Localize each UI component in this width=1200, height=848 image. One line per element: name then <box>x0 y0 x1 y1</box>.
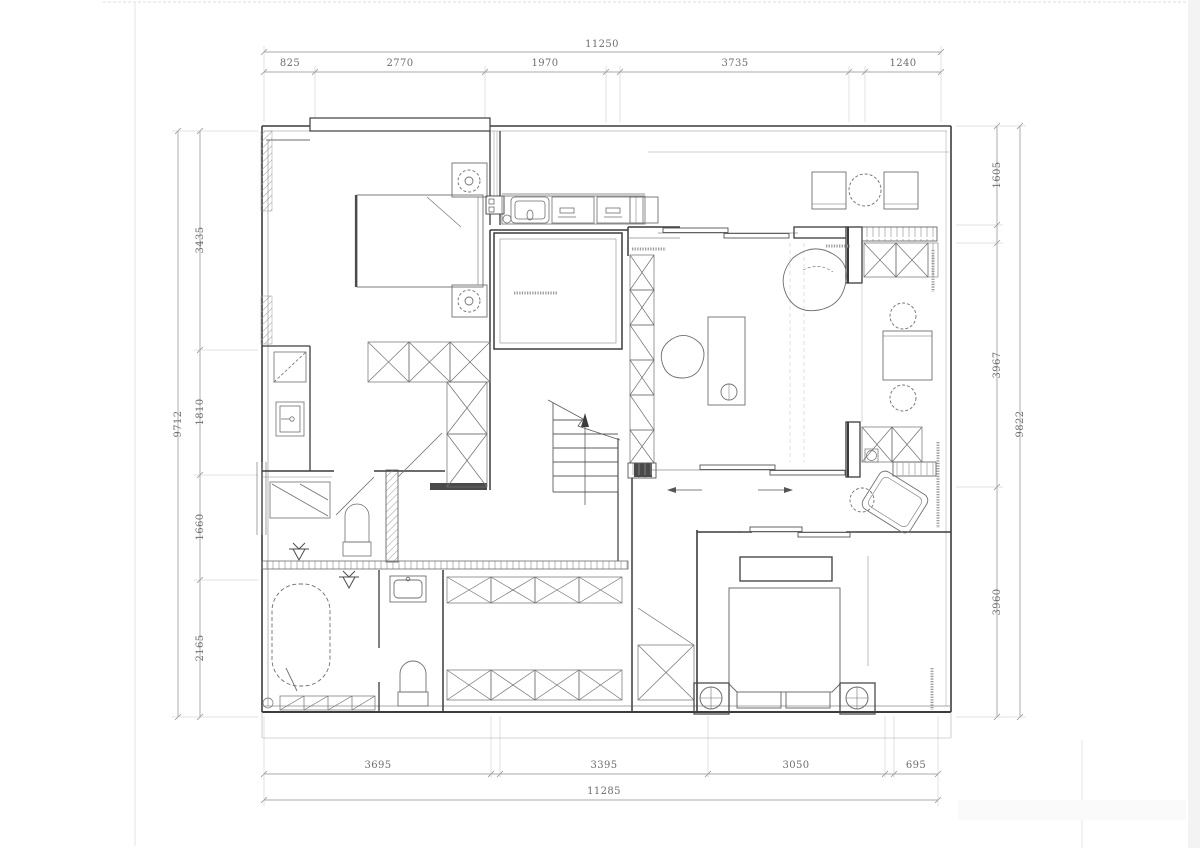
lamp-icon <box>458 290 480 312</box>
balcony-table <box>849 174 881 206</box>
top-extension-lines <box>264 46 941 122</box>
tub-faucet-icon <box>286 668 297 691</box>
window-left-1 <box>261 131 272 211</box>
annotation-marks <box>514 246 938 710</box>
dim-top-seg: 2770 <box>386 59 413 69</box>
left-extension-lines <box>172 131 258 717</box>
bedroom1-furniture <box>356 163 487 317</box>
dim-left-seg: 1810 <box>196 398 206 425</box>
kitchen-counter <box>502 194 645 224</box>
balcony-seat <box>812 172 846 209</box>
toilet-bowl <box>345 504 369 542</box>
dim-left-total: 9712 <box>174 410 184 437</box>
dim-top-seg: 1970 <box>531 59 558 69</box>
dining-table <box>708 317 745 405</box>
floor-drain-icon <box>339 571 359 588</box>
page-border <box>103 0 1200 848</box>
arrow-right-icon <box>784 487 793 493</box>
toilet-bowl <box>400 661 426 692</box>
bath-cabinet-strip <box>263 696 375 710</box>
wardrobe-cabinets <box>263 227 938 710</box>
dim-bottom-seg: 3050 <box>782 761 809 771</box>
sliding-door-bedroom2 <box>742 527 856 537</box>
dim-bottom-seg: 3695 <box>364 761 391 771</box>
sliding-doors <box>652 228 856 537</box>
dim-right-seg: 1605 <box>993 161 1003 188</box>
blanket-fold-line <box>427 197 461 227</box>
storage-core-room <box>494 233 622 349</box>
sliding-door-living-south <box>652 465 846 493</box>
entry-area <box>630 197 658 223</box>
floor-drain-icon <box>289 543 309 560</box>
dim-right-seg: 3960 <box>993 588 1003 615</box>
study-table <box>883 331 932 380</box>
living-dining-furniture <box>661 249 932 536</box>
window-left-2 <box>261 296 272 344</box>
dim-left-seg: 2165 <box>196 634 206 661</box>
closet-strip-top <box>447 577 622 603</box>
faint-watermark <box>958 800 1186 820</box>
sliding-door-north <box>658 228 798 238</box>
dining-chair <box>661 335 704 378</box>
closet-bedroom1 <box>368 342 490 382</box>
dim-top-total: 11250 <box>585 40 619 50</box>
dim-right-total: 9822 <box>1016 410 1026 437</box>
ottoman <box>850 488 874 512</box>
dim-top-seg: 825 <box>280 59 300 69</box>
hall-cabinet-column <box>628 255 656 478</box>
bay-window-band <box>310 118 490 131</box>
tap-icon <box>290 417 294 421</box>
dim-right-seg: 3967 <box>993 351 1003 378</box>
desk-cabinet <box>862 427 936 476</box>
bench <box>740 557 832 581</box>
closet-right <box>638 608 694 700</box>
bedroom2-furniture <box>694 556 875 714</box>
toilet-tank <box>343 542 371 556</box>
arrow-left-icon <box>667 487 676 493</box>
bed1 <box>357 195 483 287</box>
dim-left-seg: 1660 <box>196 513 206 540</box>
dim-bottom-seg: 695 <box>906 761 926 771</box>
toilet-tank <box>398 692 428 706</box>
dim-bottom-seg: 3395 <box>590 761 617 771</box>
hatched-wall <box>386 470 398 562</box>
utility-nook <box>274 352 306 436</box>
door-swing-powder <box>336 477 374 515</box>
balcony-furniture <box>812 172 918 209</box>
floor-plan-sheet: 11250 825 2770 1970 3735 1240 3695 3395 … <box>0 0 1200 848</box>
bathroom2 <box>272 571 428 706</box>
staircase <box>548 400 620 505</box>
tile-strip-hall <box>262 561 628 569</box>
dim-top-seg: 1240 <box>889 59 916 69</box>
powder-room <box>270 482 371 560</box>
lamp-icon <box>458 170 480 192</box>
entry-mat <box>630 197 658 223</box>
pillow <box>737 692 781 708</box>
bathtub <box>272 584 330 686</box>
interior-walls <box>262 131 951 712</box>
closet-study <box>862 227 938 277</box>
round-chair <box>890 385 916 411</box>
top-ticks <box>261 49 944 75</box>
closet-vertical <box>447 382 487 487</box>
round-chair <box>890 303 916 329</box>
lounge-chair-egg <box>783 249 846 311</box>
pillow <box>786 692 830 708</box>
window-hatch-bands <box>257 131 272 535</box>
dim-top-seg: 3735 <box>721 59 748 69</box>
dim-left-seg: 3435 <box>196 226 206 253</box>
dim-bottom-total: 11285 <box>587 787 621 797</box>
closet-strip-bottom <box>447 670 622 700</box>
lounge-chair-tilted <box>860 469 931 536</box>
balcony-seat <box>884 172 918 209</box>
faucet-icon <box>527 210 533 220</box>
bed2 <box>729 588 840 692</box>
